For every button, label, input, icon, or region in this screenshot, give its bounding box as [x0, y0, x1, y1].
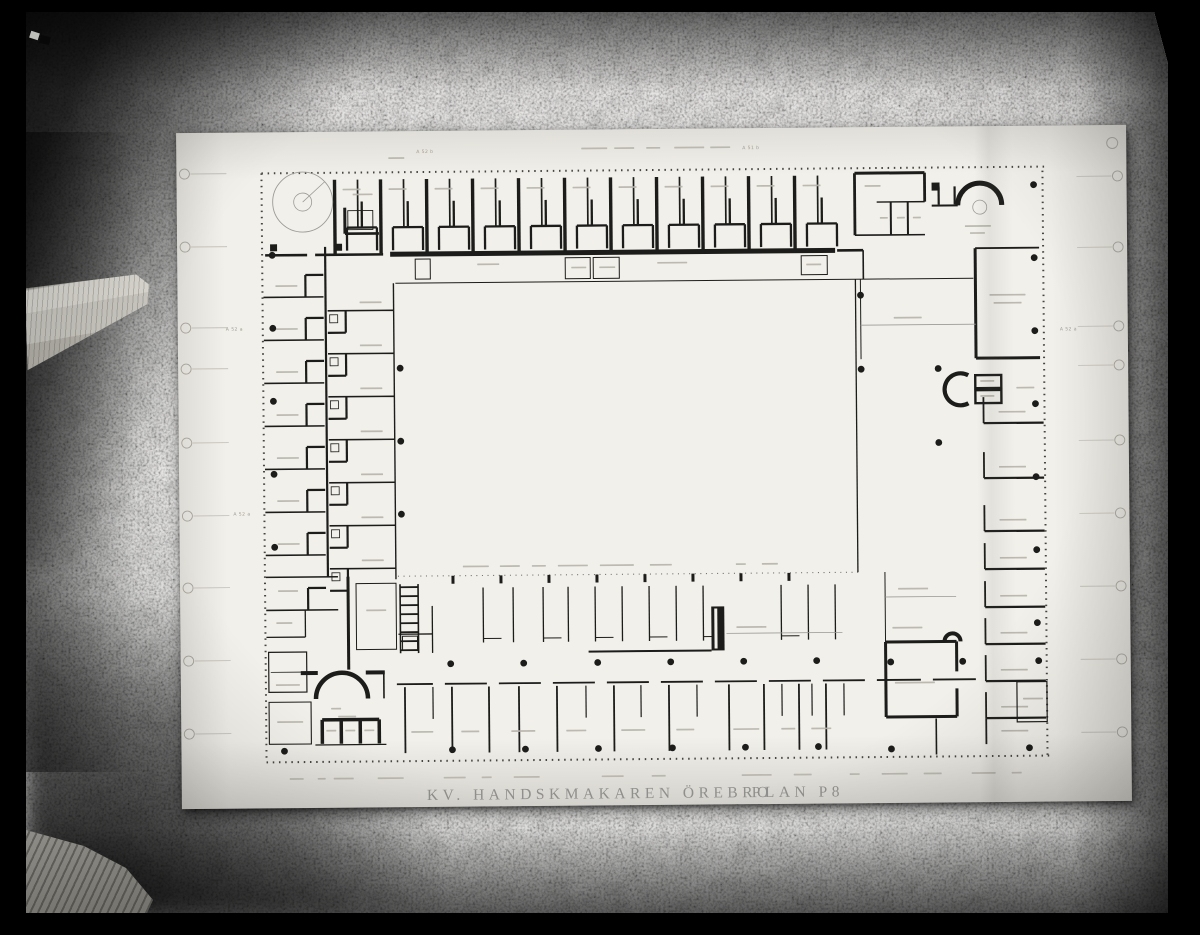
- ref-top-center: A 51 b: [742, 145, 759, 151]
- photo-frame: A 52 b A 51 b A 52 a A 52 a A 52 a KV. H…: [0, 0, 1200, 935]
- photo-area: A 52 b A 51 b A 52 a A 52 a A 52 a KV. H…: [26, 12, 1168, 913]
- plan-number: PLAN P8: [752, 783, 844, 801]
- plan-linework: [179, 137, 1128, 809]
- floor-plan: A 52 b A 51 b A 52 a A 52 a A 52 a KV. H…: [176, 125, 1132, 809]
- ref-top-left: A 52 b: [416, 149, 433, 155]
- ref-right: A 52 a: [1060, 326, 1077, 332]
- ref-left: A 52 a: [226, 327, 243, 333]
- plan-title: KV. HANDSKMAKAREN ÖREBRO: [427, 784, 773, 804]
- drawing-sheet: A 52 b A 51 b A 52 a A 52 a A 52 a KV. H…: [176, 125, 1132, 809]
- ref-bottom-left: A 52 a: [233, 512, 250, 518]
